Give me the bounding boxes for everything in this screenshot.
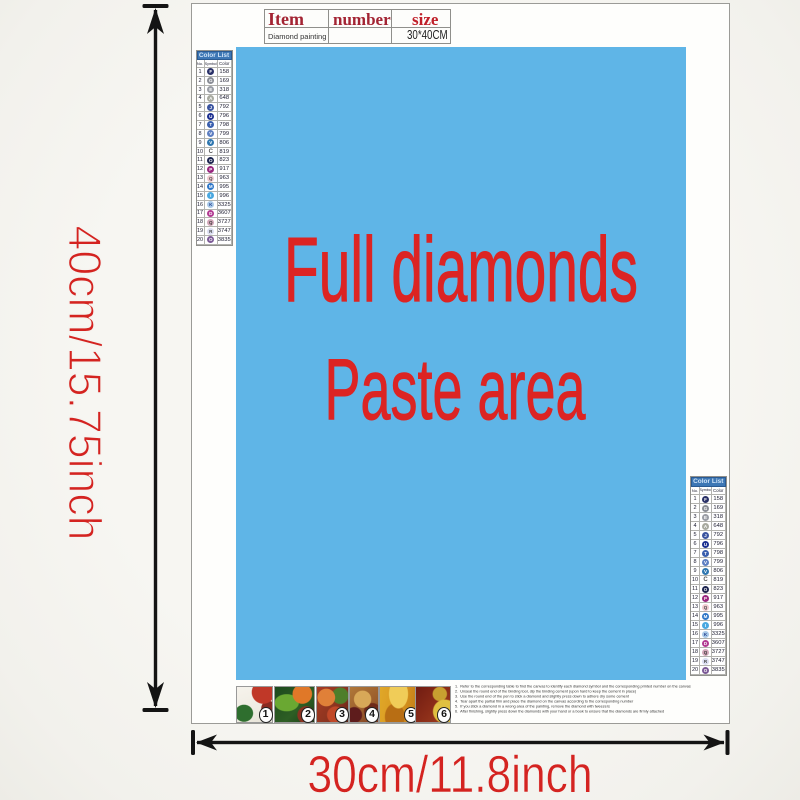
svg-text:Full diamonds: Full diamonds: [284, 219, 638, 321]
svg-text:30cm/11.8inch: 30cm/11.8inch: [308, 746, 593, 800]
svg-text:Paste area: Paste area: [325, 342, 586, 438]
svg-text:40cm/15.75inch: 40cm/15.75inch: [59, 226, 111, 541]
